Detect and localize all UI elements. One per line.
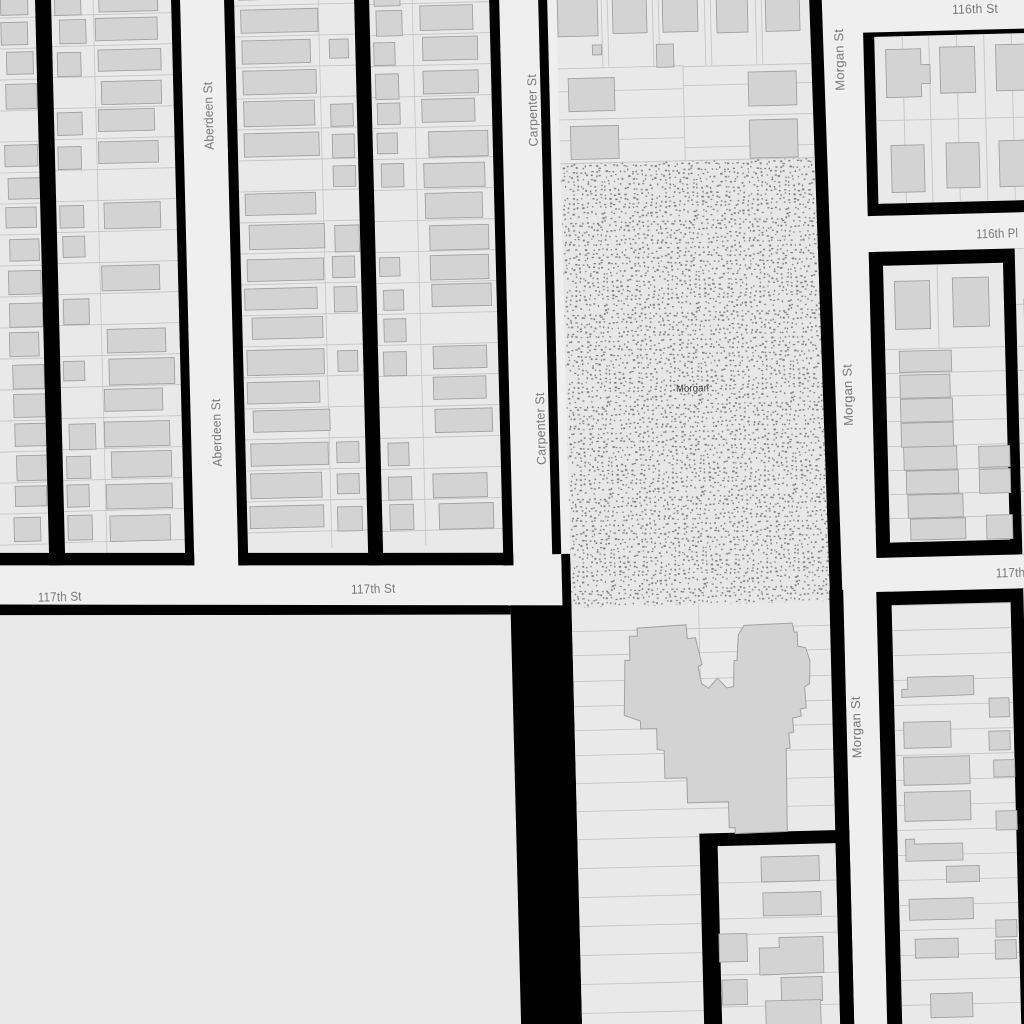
svg-text:117th St: 117th St — [38, 590, 83, 605]
svg-text:117th St: 117th St — [996, 566, 1024, 581]
svg-text:116th St: 116th St — [952, 2, 999, 17]
svg-text:Carpenter St: Carpenter St — [525, 74, 541, 147]
svg-text:117th St: 117th St — [351, 582, 396, 597]
svg-text:Morgan St: Morgan St — [849, 696, 865, 759]
svg-text:Morgan: Morgan — [676, 382, 709, 395]
svg-text:116th Pl: 116th Pl — [976, 227, 1018, 242]
svg-text:Morgan St: Morgan St — [832, 28, 848, 91]
svg-text:Aberdeen St: Aberdeen St — [201, 81, 217, 150]
svg-text:Morgan St: Morgan St — [840, 363, 856, 426]
svg-text:Aberdeen St: Aberdeen St — [209, 398, 225, 467]
svg-text:Carpenter St: Carpenter St — [533, 392, 549, 465]
